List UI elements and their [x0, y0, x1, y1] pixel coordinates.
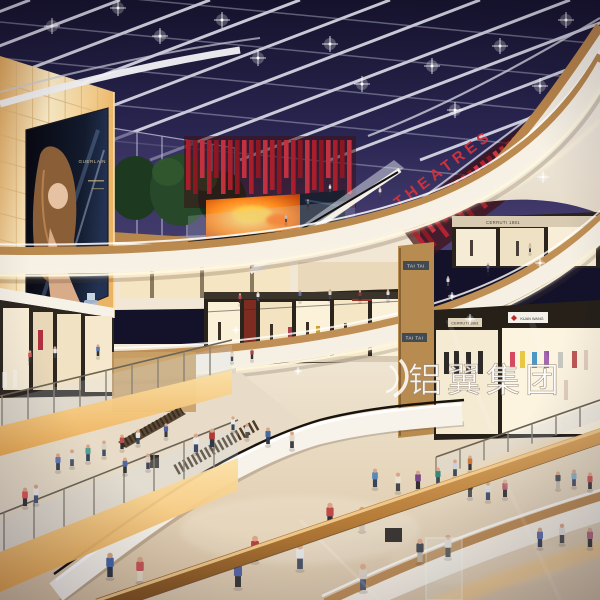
mall-atrium-rendering: GUERLAIN THEATRES CERRU: [0, 0, 600, 600]
vignette-overlay: [0, 0, 600, 600]
rendering-canvas: GUERLAIN THEATRES CERRU: [0, 0, 600, 600]
